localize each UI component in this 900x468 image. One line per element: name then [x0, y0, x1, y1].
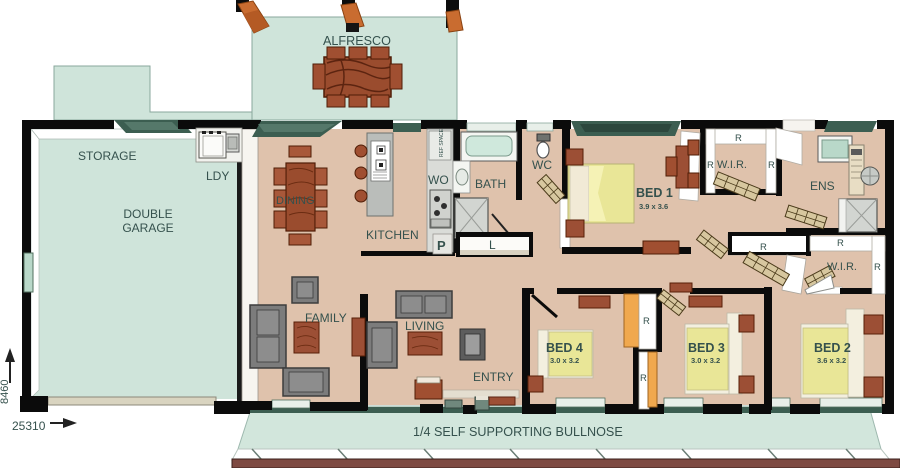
svg-text:R: R [760, 242, 767, 253]
svg-text:3.0 x 3.2: 3.0 x 3.2 [550, 356, 579, 365]
svg-text:BED 4: BED 4 [546, 341, 583, 355]
svg-text:LIVING: LIVING [405, 319, 444, 333]
svg-text:25310: 25310 [12, 419, 46, 433]
svg-text:FAMILY: FAMILY [305, 311, 347, 325]
svg-text:BATH: BATH [475, 177, 506, 191]
svg-text:GARAGE: GARAGE [122, 221, 173, 235]
svg-text:R: R [643, 316, 650, 327]
svg-text:3.9 x 3.6: 3.9 x 3.6 [639, 202, 668, 211]
svg-text:BED 2: BED 2 [814, 341, 851, 355]
svg-text:R: R [874, 262, 881, 273]
svg-text:3.6 x 3.2: 3.6 x 3.2 [817, 356, 846, 365]
svg-text:REF SPACE: REF SPACE [439, 128, 445, 157]
svg-text:8460: 8460 [0, 380, 11, 404]
svg-text:WC: WC [532, 158, 552, 172]
svg-text:R: R [640, 373, 647, 384]
svg-text:BED 3: BED 3 [688, 341, 725, 355]
svg-text:ENS: ENS [810, 179, 835, 193]
svg-text:BED 1: BED 1 [636, 186, 673, 200]
svg-text:W.I.R.: W.I.R. [717, 159, 747, 171]
svg-text:LDY: LDY [206, 169, 229, 183]
svg-text:W.I.R.: W.I.R. [827, 261, 857, 273]
svg-text:R: R [768, 160, 775, 171]
svg-text:ALFRESCO: ALFRESCO [323, 34, 391, 48]
svg-text:DOUBLE: DOUBLE [123, 207, 172, 221]
svg-text:1/4 SELF SUPPORTING BULLNOSE: 1/4 SELF SUPPORTING BULLNOSE [413, 425, 623, 439]
svg-text:R: R [837, 238, 844, 249]
svg-text:WO: WO [428, 173, 449, 187]
svg-text:KITCHEN: KITCHEN [366, 228, 419, 242]
svg-text:L: L [489, 238, 496, 252]
svg-text:ENTRY: ENTRY [473, 370, 513, 384]
svg-text:STORAGE: STORAGE [78, 149, 136, 163]
svg-text:P: P [437, 238, 446, 253]
svg-text:R: R [707, 160, 714, 171]
svg-text:R: R [735, 133, 742, 144]
svg-text:3.0 x 3.2: 3.0 x 3.2 [691, 356, 720, 365]
svg-text:DINING: DINING [276, 195, 315, 207]
